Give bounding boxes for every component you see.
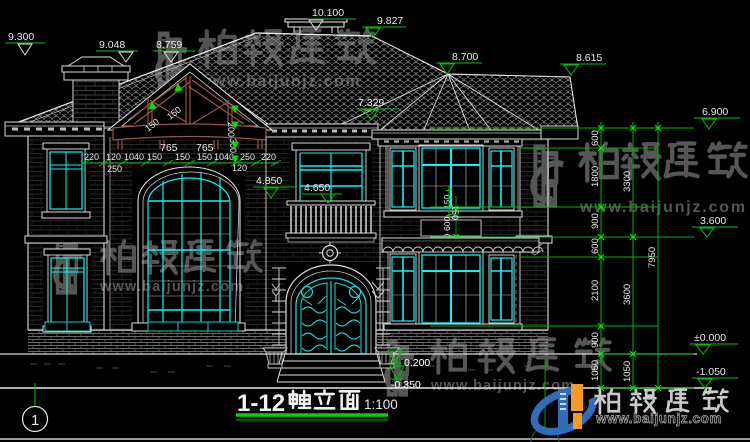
svg-text:9.300: 9.300 [8,31,34,43]
svg-text:6.900: 6.900 [702,106,728,118]
svg-text:4.650: 4.650 [304,182,330,194]
svg-text:600: 600 [590,238,601,254]
svg-text:220: 220 [261,152,276,162]
svg-text:600: 600 [590,130,601,146]
svg-text:250: 250 [107,164,122,174]
svg-text:220: 220 [84,152,99,162]
svg-text:8.700: 8.700 [452,51,478,63]
svg-text:1800: 1800 [590,166,601,187]
svg-text:10.100: 10.100 [312,7,344,19]
svg-text:7.329: 7.329 [358,97,384,109]
svg-text:150: 150 [175,152,190,162]
svg-text:3300: 3300 [622,171,633,192]
svg-text:-1.050: -1.050 [696,366,726,378]
svg-text:1050: 1050 [622,361,633,382]
svg-text:1050: 1050 [590,360,601,381]
svg-text:1: 1 [31,412,39,429]
svg-text:8.615: 8.615 [576,52,602,64]
svg-text:www.baijunjz.com: www.baijunjz.com [595,411,722,426]
svg-text:www.baijunjz.com: www.baijunjz.com [430,378,575,394]
svg-text:0.200: 0.200 [404,357,430,369]
svg-text:3600: 3600 [622,284,633,305]
svg-text:7950: 7950 [647,247,658,268]
svg-text:4.850: 4.850 [256,175,282,187]
svg-text:9.048: 9.048 [99,39,125,51]
svg-text:1-12: 1-12 [237,390,285,417]
svg-text:1:100: 1:100 [364,397,398,412]
svg-text:9.827: 9.827 [377,15,403,27]
svg-text:150: 150 [197,152,212,162]
svg-text:2100: 2100 [590,280,601,301]
svg-text:8.759: 8.759 [156,39,182,51]
svg-text:900: 900 [590,213,601,229]
svg-text:900: 900 [590,332,601,348]
svg-text:250: 250 [240,152,255,162]
svg-text:±0.000: ±0.000 [694,332,726,344]
svg-text:-0.350: -0.350 [391,379,421,391]
svg-text:3.600: 3.600 [700,215,726,227]
